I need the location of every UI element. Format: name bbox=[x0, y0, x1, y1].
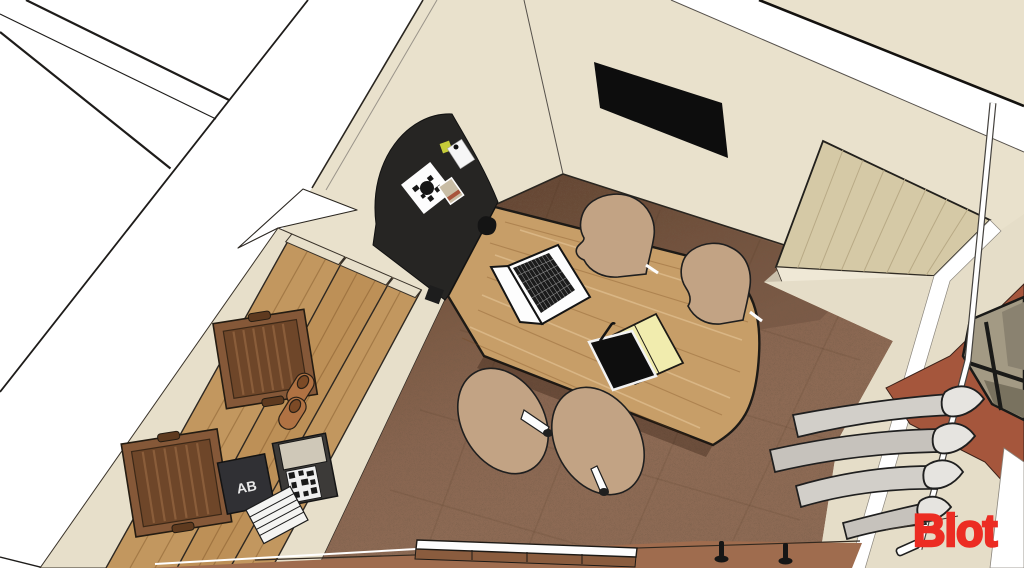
svg-text:Blot: Blot bbox=[913, 505, 997, 556]
